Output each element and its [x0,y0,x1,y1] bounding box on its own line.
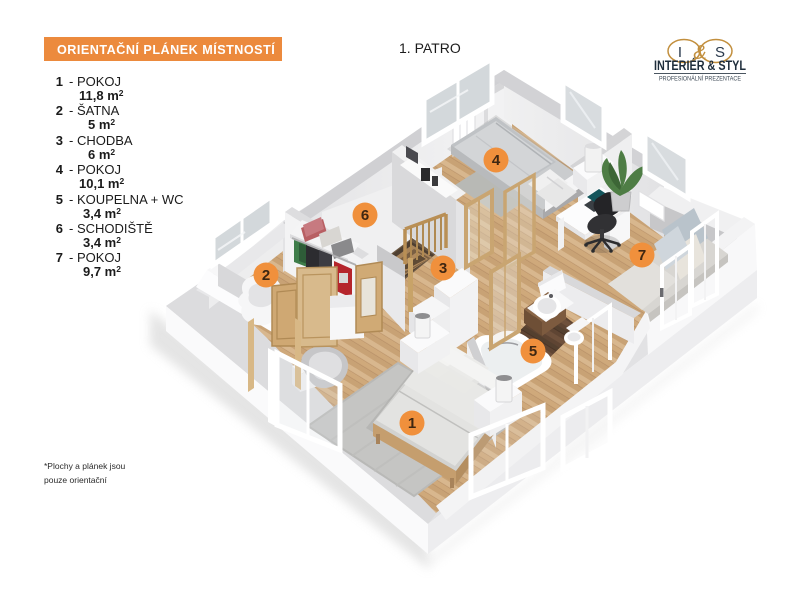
svg-text:11,8 m2: 11,8 m2 [79,88,124,103]
svg-text:5 m2: 5 m2 [88,117,115,132]
svg-text:ORIENTAČNÍ PLÁNEK MÍSTNOSTÍ: ORIENTAČNÍ PLÁNEK MÍSTNOSTÍ [57,42,275,57]
svg-text:3,4 m2: 3,4 m2 [83,235,121,250]
svg-text:5: 5 [529,343,537,360]
svg-text:- POKOJ: - POKOJ [69,74,121,89]
svg-text:4: 4 [56,162,64,177]
svg-text:2: 2 [262,267,270,284]
svg-text:7: 7 [638,247,646,264]
svg-text:1: 1 [408,415,416,432]
svg-text:- SCHODIŠTĚ: - SCHODIŠTĚ [69,221,153,236]
svg-text:1: 1 [56,74,63,89]
svg-text:pouze orientační: pouze orientační [44,475,107,485]
svg-text:- ŠATNA: - ŠATNA [69,103,120,118]
svg-text:PROFESIONÁLNÍ PREZENTACE: PROFESIONÁLNÍ PREZENTACE [659,76,741,83]
svg-text:5: 5 [56,192,63,207]
svg-text:3: 3 [439,260,447,277]
svg-text:4: 4 [492,152,501,169]
svg-text:2: 2 [56,103,63,118]
svg-text:- CHODBA: - CHODBA [69,133,133,148]
svg-text:6 m2: 6 m2 [88,147,115,162]
svg-text:7: 7 [56,250,63,265]
svg-text:3: 3 [56,133,63,148]
svg-text:10,1 m2: 10,1 m2 [79,176,124,191]
svg-text:- POKOJ: - POKOJ [69,162,121,177]
svg-text:3,4 m2: 3,4 m2 [83,206,121,221]
svg-text:9,7 m2: 9,7 m2 [83,264,121,279]
svg-text:INTERIÉR & STYL: INTERIÉR & STYL [654,58,746,73]
svg-text:*Plochy a plánek jsou: *Plochy a plánek jsou [44,461,126,471]
svg-text:- KOUPELNA + WC: - KOUPELNA + WC [69,192,184,207]
svg-text:6: 6 [56,221,63,236]
svg-text:- POKOJ: - POKOJ [69,250,121,265]
svg-text:1. PATRO: 1. PATRO [399,40,461,56]
svg-text:6: 6 [361,207,369,224]
